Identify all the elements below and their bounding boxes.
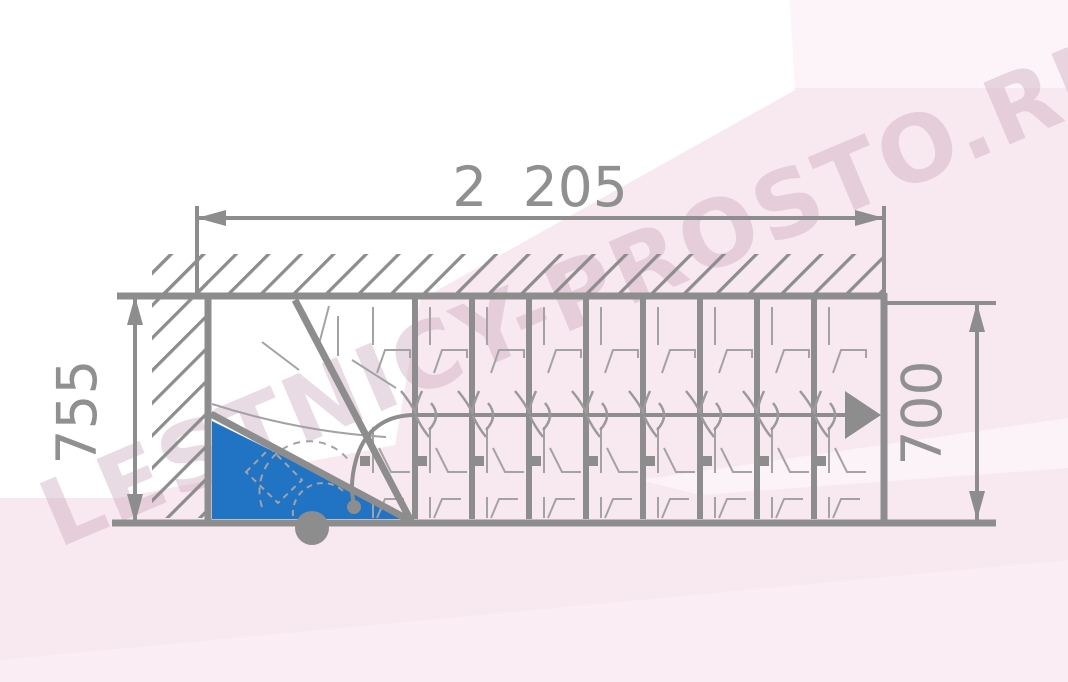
direction-arrow-icon <box>845 391 881 439</box>
dim-arrow-up-icon <box>127 296 143 325</box>
dim-arrow-down-icon <box>969 491 985 520</box>
dimension-left: 755 <box>45 296 143 523</box>
dim-arrow-up-icon <box>969 303 985 332</box>
dimension-left-label: 755 <box>45 360 109 465</box>
staircase-plan-svg: 2 205 755 700 <box>0 0 1068 682</box>
dim-arrow-left-icon <box>197 210 226 226</box>
top-wall-hatch <box>152 254 884 293</box>
dimension-right-label: 700 <box>890 361 954 466</box>
dim-arrow-right-icon <box>855 210 884 226</box>
dim-arrow-down-icon <box>127 494 143 523</box>
walk-line-end-dot <box>347 500 361 514</box>
newel-post <box>295 511 329 545</box>
drawing-canvas: LESTNICY-PROSTO.RU <box>0 0 1068 682</box>
dimension-top-label: 2 205 <box>452 155 627 219</box>
dimension-right: 700 <box>884 303 996 520</box>
